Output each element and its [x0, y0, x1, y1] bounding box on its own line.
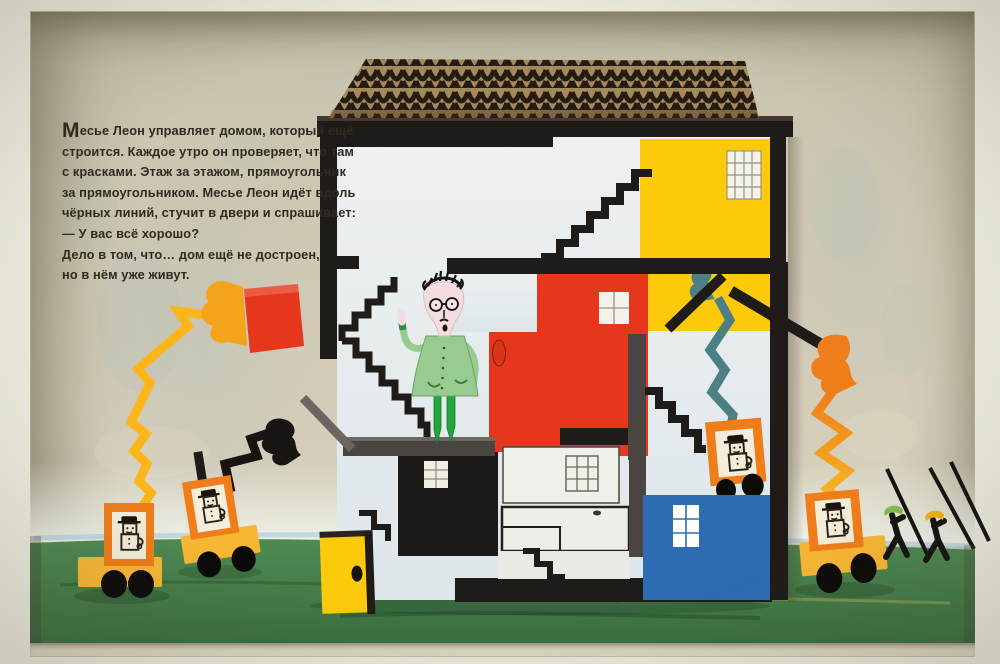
- story-line: за прямоугольником. Месье Леон идёт вдол…: [62, 183, 382, 204]
- story-line: строится. Каждое утро он проверяет, что …: [62, 142, 382, 163]
- drop-cap: М: [62, 119, 80, 142]
- book-spread-photo: Месье Леон управляет домом, который ещё …: [0, 0, 1000, 664]
- story-line: но в нём уже живут.: [62, 265, 382, 286]
- story-line: с красками. Этаж за этажом, прямоугольни…: [62, 162, 382, 183]
- story-line: — У вас всё хорошо?: [62, 224, 382, 245]
- photo-vignette: [0, 0, 1000, 664]
- story-line: Месье Леон управляет домом, который ещё: [62, 121, 382, 142]
- story-line: чёрных линий, стучит в двери и спрашивае…: [62, 203, 382, 224]
- diorama-artwork: [0, 0, 1000, 664]
- story-line: Дело в том, что… дом ещё не достроен,: [62, 245, 382, 266]
- story-text: Месье Леон управляет домом, который ещё …: [62, 121, 382, 286]
